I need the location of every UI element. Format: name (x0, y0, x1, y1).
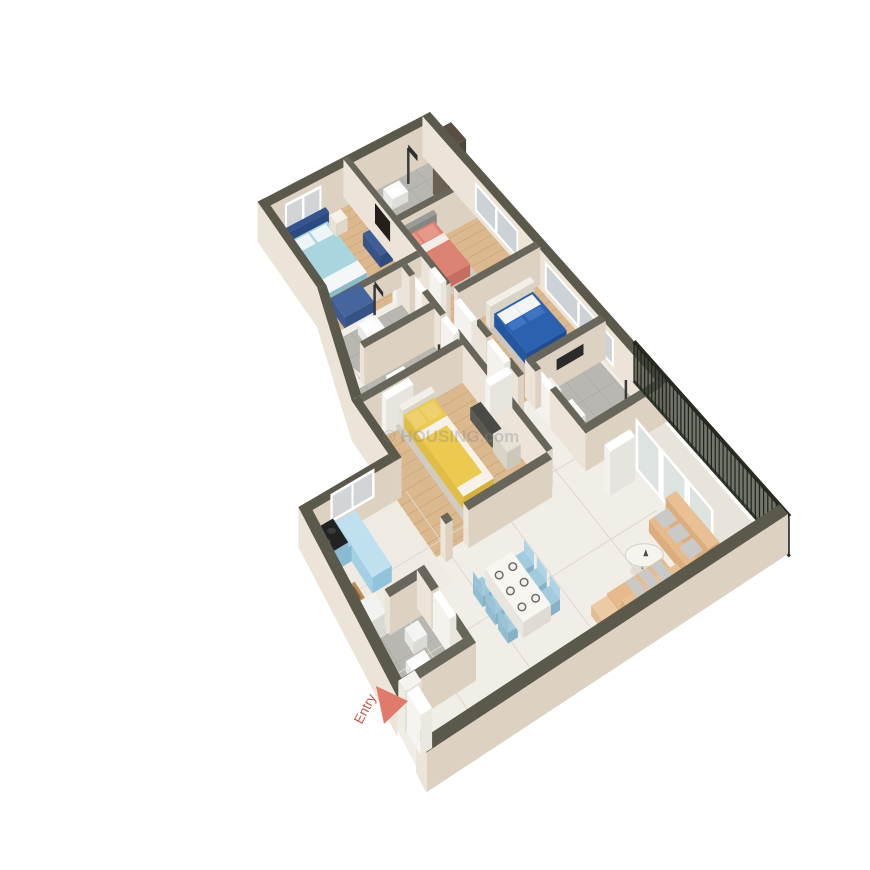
svg-text:© HOUSING.com: © HOUSING.com (383, 427, 519, 446)
